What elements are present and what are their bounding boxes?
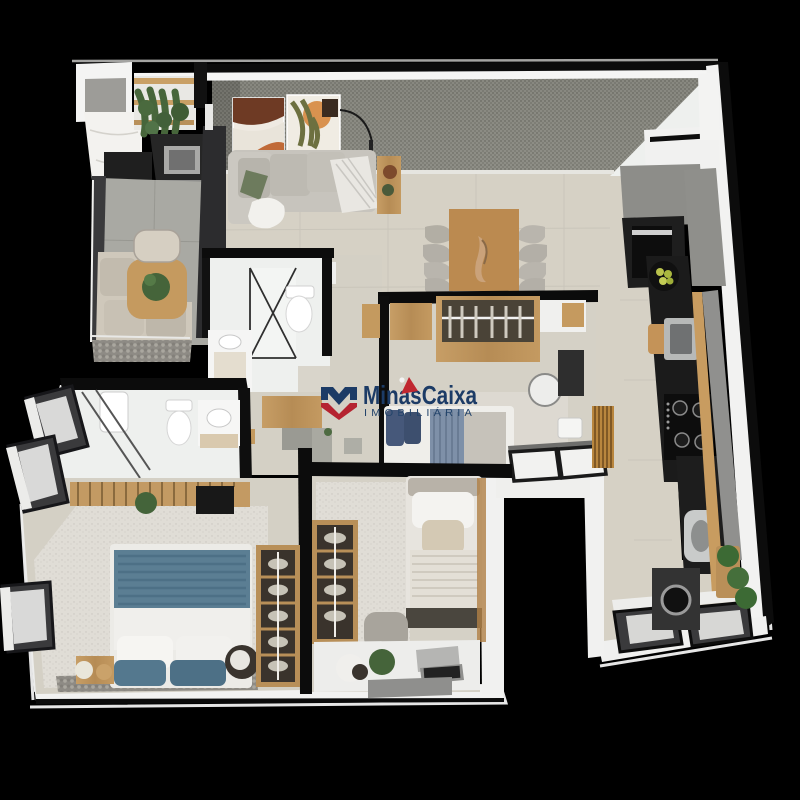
svg-text:MinasCaixa: MinasCaixa xyxy=(363,380,477,410)
svg-text:IMOBILIÁRIA: IMOBILIÁRIA xyxy=(364,406,476,419)
